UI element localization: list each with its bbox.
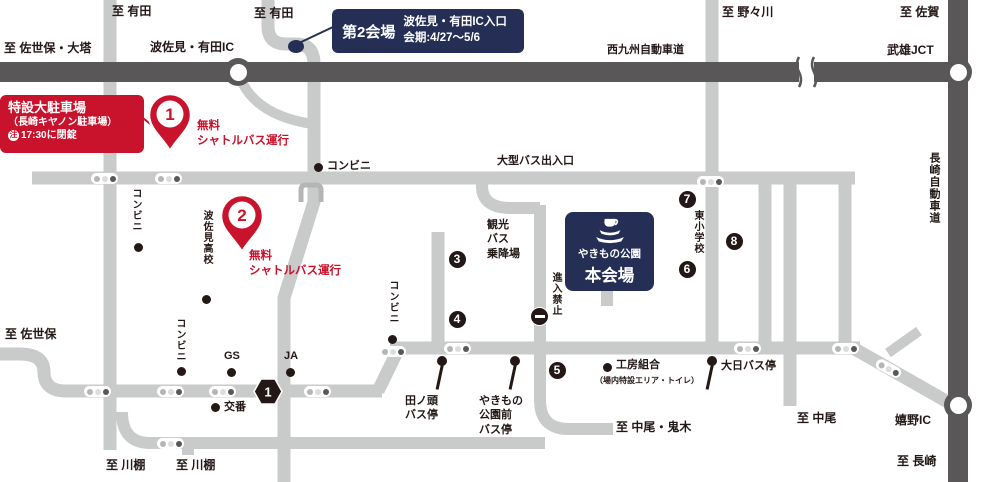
conbini-top-dot (314, 163, 323, 172)
traffic-signal-icon (304, 386, 331, 397)
tour-bus-area-label-line: 乗降場 (487, 247, 520, 261)
yakimono-park-bus-stop-label: やきもの公園前バス停 (479, 394, 523, 437)
hasami-arita-ic-label: 波佐見・有田IC (150, 41, 234, 53)
dainichi-bus-stop-label: 大日バス停 (721, 361, 776, 372)
koban-dot (211, 403, 220, 412)
takeo-jct-circle (944, 58, 972, 86)
kobo-kumiai-label: 工房組合 (616, 360, 660, 371)
highschool-dot (202, 295, 211, 304)
large-bus-gate-label: 大型バス出入口 (497, 156, 574, 167)
pottery-icon (591, 218, 629, 244)
to-saga: 至 佐賀 (900, 6, 939, 18)
parking-pin-1: 1 (146, 91, 194, 160)
tanogashira-bus-stop-label-line: 田ノ頭 (405, 394, 438, 408)
conbini-mid-label: コンビニ (387, 280, 397, 324)
traffic-signal-icon (832, 343, 859, 354)
conbini-arita-road: コンビニ (130, 188, 140, 232)
map-marker-4: 4 (448, 310, 467, 329)
parking-callout: 特設大駐車場 （長崎キヤノン駐車場） 注 17:30に閉錠 (0, 95, 144, 153)
conbini-top-label: コンビニ (327, 161, 371, 172)
conbini-left-label: コンビニ (174, 318, 184, 362)
gs-dot (227, 368, 236, 377)
nishi-kyushu-expwy-label: 西九州自動車道 (607, 45, 684, 56)
expressway-break (797, 57, 816, 87)
traffic-signal-icon (209, 386, 236, 397)
ja-label: JA (284, 351, 298, 362)
ja-dot (286, 368, 295, 377)
to-nagasaki: 至 長崎 (897, 455, 936, 467)
traffic-signal-icon (734, 343, 761, 354)
svg-text:1: 1 (264, 384, 271, 399)
ureshino-ic-label: 嬉野IC (895, 414, 931, 426)
shuttle-note-1-line: 無料 (197, 119, 289, 134)
higashi-elementary-label: 東小学校 (692, 210, 702, 254)
traffic-signal-icon (91, 173, 118, 184)
venue2-location-dot (288, 40, 304, 53)
hasami-highschool-label: 波佐見高校 (201, 210, 211, 265)
map-marker-7: 7 (678, 190, 697, 209)
ureshino-ic-circle (944, 391, 972, 419)
to-sasebo-daito: 至 佐世保・大塔 (4, 42, 91, 54)
tanogashira-bus-stop-icon (436, 356, 448, 390)
to-sasebo: 至 佐世保 (5, 328, 56, 340)
map-marker-6: 6 (678, 260, 697, 279)
koban-label: 交番 (224, 402, 246, 413)
kobo-kumiai-dot (603, 363, 612, 372)
main-venue-park-name: やきもの公園 (578, 246, 641, 261)
tanogashira-bus-stop-label-line: バス停 (405, 408, 438, 422)
parking-title: 特設大駐車場 (8, 101, 136, 116)
route-1-badge: 1 (253, 378, 283, 405)
no-entry-label: 進入禁止 (550, 272, 560, 316)
ic-ramp-road (243, 84, 312, 124)
to-nakao-oniki: 至 中尾・鬼木 (616, 421, 691, 433)
to-kawatana-1: 至 川棚 (106, 459, 145, 471)
map-marker-5: 5 (548, 361, 567, 380)
traffic-signal-icon (155, 173, 182, 184)
takeo-jct-label: 武雄JCT (887, 44, 934, 56)
to-kawatana-2: 至 川棚 (176, 459, 215, 471)
nagasaki-expwy-label: 長崎自動車道 (928, 152, 939, 224)
venue2-pointer-line (299, 27, 333, 43)
shuttle-note-2-line: シャトルバス運行 (249, 264, 341, 279)
access-map: 第2会場 波佐見・有田IC入口 会期:4/27～5/6 特設大駐車場 （長崎キヤ… (0, 0, 1000, 482)
traffic-signal-icon (157, 438, 184, 449)
tanogashira-bus-stop-label: 田ノ頭バス停 (405, 394, 438, 423)
dainichi-bus-stop-icon (706, 356, 718, 390)
note-mark-icon: 注 (8, 130, 19, 141)
map-marker-8: 8 (725, 232, 744, 251)
shuttle-note-1: 無料シャトルバス運行 (197, 119, 289, 149)
traffic-signal-icon (84, 386, 111, 397)
venue2-dates: 会期:4/27～5/6 (403, 31, 507, 47)
yakimono-park-bus-stop-label-line: 公園前 (479, 408, 523, 422)
to-arita-left: 至 有田 (112, 5, 151, 17)
venue2-callout: 第2会場 波佐見・有田IC入口 会期:4/27～5/6 (332, 9, 524, 53)
conbini-mid-dot (388, 335, 397, 344)
to-arita-mid: 至 有田 (254, 7, 293, 19)
venue2-title: 第2会場 (342, 21, 395, 42)
yakimono-park-bus-stop-label-line: バス停 (479, 423, 523, 437)
traffic-signal-icon (379, 346, 406, 357)
to-nakao: 至 中尾 (797, 412, 836, 424)
hasami-arita-ic-circle (224, 58, 252, 86)
main-venue-box: やきもの公園 本会場 (565, 212, 654, 291)
nakao-oniki-road (540, 344, 613, 429)
ureshino-diagonal-road (853, 348, 953, 405)
tour-bus-area-label-line: 観光 (487, 218, 520, 232)
parking-subtitle: （長崎キヤノン駐車場） (8, 116, 136, 129)
venue2-location: 波佐見・有田IC入口 (403, 15, 507, 31)
no-entry-icon (530, 307, 549, 326)
yakimono-park-bus-stop-icon (509, 356, 521, 390)
conbini-arita-dot (134, 243, 143, 252)
diagonal-stub-road (888, 331, 919, 353)
tour-bus-area-label-line: バス (487, 232, 520, 246)
shuttle-note-1-line: シャトルバス運行 (197, 134, 289, 149)
main-venue-label: 本会場 (585, 262, 635, 286)
gs-label: GS (224, 351, 240, 362)
to-nonogawa: 至 野々川 (722, 6, 773, 18)
svg-text:1: 1 (165, 105, 174, 124)
parking-note-text: 17:30に閉錠 (21, 129, 77, 142)
tour-bus-area-label: 観光バス乗降場 (487, 218, 520, 261)
parking-pin-2: 2 (218, 192, 266, 261)
conbini-left-dot (177, 367, 186, 376)
traffic-signal-icon (157, 386, 184, 397)
svg-text:2: 2 (237, 206, 246, 225)
kobo-kumiai-note: （場内特設エリア・トイレ） (595, 377, 699, 385)
traffic-signal-icon (444, 343, 471, 354)
map-marker-3: 3 (448, 250, 467, 269)
parking-note: 注 17:30に閉錠 (8, 129, 136, 142)
traffic-signal-icon (697, 176, 724, 187)
yakimono-park-bus-stop-label-line: やきもの (479, 394, 523, 408)
